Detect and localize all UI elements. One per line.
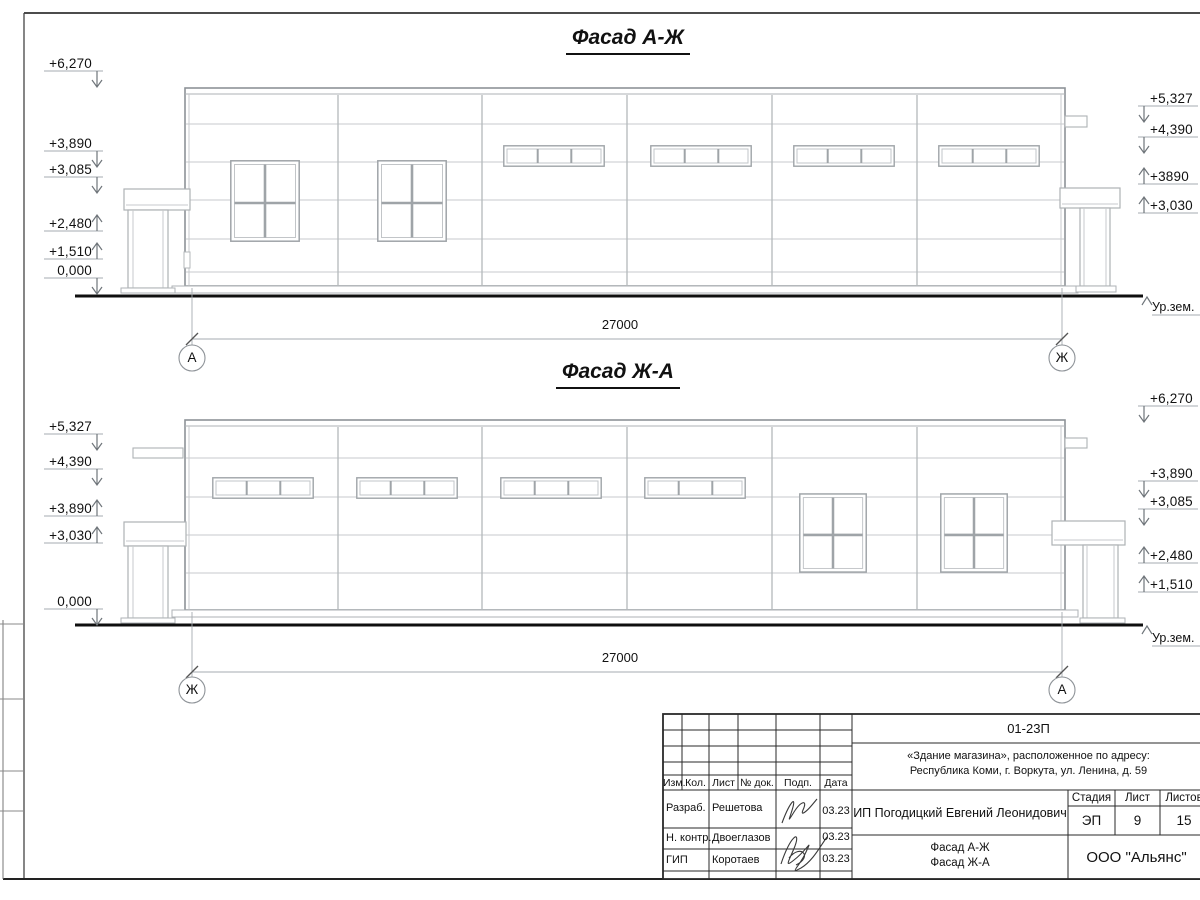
company-name: ООО "Альянс" <box>1068 849 1200 866</box>
strip-window <box>213 478 313 498</box>
col-ndok: № док. <box>738 777 776 789</box>
big-window <box>800 494 866 572</box>
drawing-sheet: Фасад А-Ж Фасад Ж-А +6,270 +3,890 +3,085… <box>0 0 1200 900</box>
project-line1: «Здание магазина», расположенное по адре… <box>852 749 1200 764</box>
col-list: Лист <box>709 777 738 789</box>
roof-scupper <box>1065 438 1087 448</box>
axis-bubble-label: Ж <box>1048 350 1076 365</box>
col-kol: Кол. <box>682 777 709 789</box>
sheets-label: Листов <box>1160 792 1200 804</box>
strip-window <box>645 478 745 498</box>
elevation-mark: +1,510 <box>28 244 92 259</box>
elevation-mark: +6,270 <box>28 56 92 71</box>
axis-bubble-label: А <box>178 350 206 365</box>
stage-value: ЭП <box>1068 813 1115 828</box>
elevation-mark: 0,000 <box>28 594 92 609</box>
big-window <box>378 161 446 241</box>
col-podp: Подп. <box>776 777 820 789</box>
role-label: ГИП <box>666 854 688 866</box>
elevation-mark: +6,270 <box>1150 391 1200 406</box>
sheet-number: 9 <box>1115 813 1160 828</box>
roof-scupper <box>133 448 183 458</box>
person-name: Двоеглазов <box>712 832 770 844</box>
project-description: «Здание магазина», расположенное по адре… <box>852 749 1200 778</box>
elevation-mark: +3,890 <box>1150 466 1200 481</box>
document-code: 01-23П <box>852 721 1200 736</box>
elevation-mark: +3,085 <box>1150 494 1200 509</box>
ground-level-label: Ур.зем. <box>1152 300 1200 314</box>
role-label: Н. контр. <box>666 832 711 844</box>
strip-window <box>794 146 894 166</box>
elevation-mark: +5,327 <box>1150 91 1200 106</box>
elevation-mark: +2,480 <box>1150 548 1200 563</box>
strip-window <box>501 478 601 498</box>
facade-bottom-title: Фасад Ж-А <box>418 360 818 389</box>
elevation-mark: +3,030 <box>1150 198 1200 213</box>
axis-bubble-label: А <box>1048 682 1076 697</box>
drawing-title: Фасад А-Ж Фасад Ж-А <box>852 841 1068 871</box>
axis-bubble-label: Ж <box>178 682 206 697</box>
elevation-mark: +4,390 <box>1150 122 1200 137</box>
elevation-mark: +3890 <box>1150 169 1200 184</box>
sign-date: 03.23 <box>820 853 852 865</box>
elevation-mark: +1,510 <box>1150 577 1200 592</box>
stage-label: Стадия <box>1068 792 1115 804</box>
elevation-mark: +3,890 <box>28 136 92 151</box>
elevation-mark: +3,030 <box>28 528 92 543</box>
strip-window <box>939 146 1039 166</box>
elevation-mark: +3,085 <box>28 162 92 177</box>
elevation-mark: +3,890 <box>28 501 92 516</box>
role-label: Разраб. <box>666 802 706 814</box>
elevation-mark: 0,000 <box>28 263 92 278</box>
sign-date: 03.23 <box>820 805 852 817</box>
big-window <box>941 494 1007 572</box>
facade-top-title: Фасад А-Ж <box>428 26 828 55</box>
elevation-mark: +5,327 <box>28 419 92 434</box>
dimension-label: 27000 <box>540 650 700 665</box>
client-name: ИП Погодицкий Евгений Леонидович <box>852 806 1068 820</box>
strip-window <box>651 146 751 166</box>
roof-scupper <box>1065 116 1087 127</box>
col-izm: Изм. <box>663 777 682 789</box>
drawing-title-line1: Фасад А-Ж <box>852 841 1068 856</box>
strip-window <box>504 146 604 166</box>
sheets-total: 15 <box>1160 813 1200 828</box>
facade-top-building <box>184 88 1087 286</box>
person-name: Коротаев <box>712 854 760 866</box>
drawing-title-line2: Фасад Ж-А <box>852 856 1068 871</box>
strip-window <box>357 478 457 498</box>
sign-date: 03.23 <box>820 831 852 843</box>
ground-level-label: Ур.зем. <box>1152 631 1200 645</box>
big-window <box>231 161 299 241</box>
sheet-label: Лист <box>1115 792 1160 804</box>
project-line2: Республика Коми, г. Воркута, ул. Ленина,… <box>852 764 1200 779</box>
elevation-mark: +2,480 <box>28 216 92 231</box>
elevation-mark: +4,390 <box>28 454 92 469</box>
col-data: Дата <box>820 777 852 789</box>
person-name: Решетова <box>712 802 762 814</box>
dimension-label: 27000 <box>540 317 700 332</box>
